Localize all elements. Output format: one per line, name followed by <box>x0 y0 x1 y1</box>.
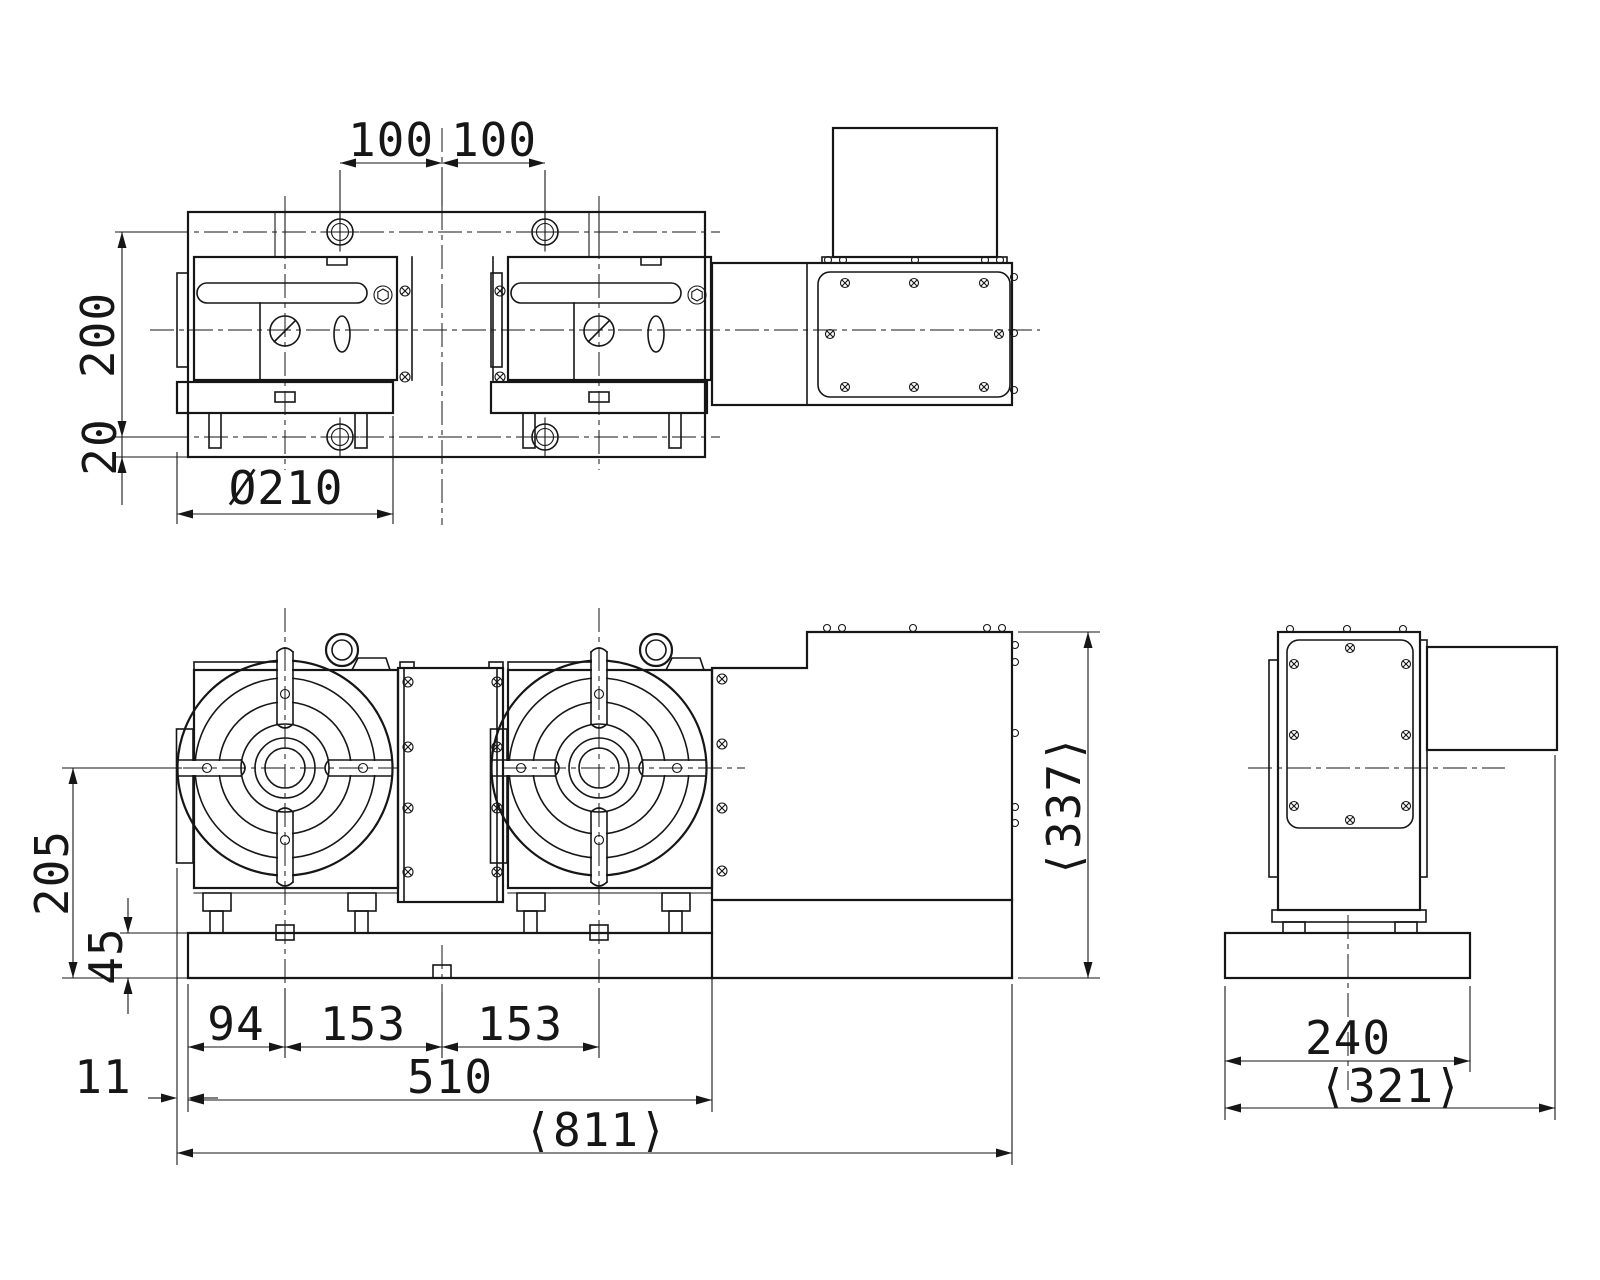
front-view <box>105 608 1019 1008</box>
rotary-unit-right-front <box>491 634 713 940</box>
dim-label: 240 <box>1305 1011 1391 1065</box>
twin-rotary-table-drawing: 100 100 200 20 Ø210 <box>0 0 1600 1280</box>
dim-label: 11 <box>74 1050 131 1104</box>
motor-box-top <box>833 128 997 257</box>
center-joint-top <box>400 257 505 382</box>
dim-label: 510 <box>407 1050 493 1104</box>
dim-label: 94 <box>207 997 264 1051</box>
dim-label: 200 <box>71 292 125 378</box>
dim-center-height: 205 45 <box>25 768 190 1014</box>
dim-overall-width: ⟨811⟩ <box>177 984 1012 1165</box>
dimensions: 100 100 200 20 Ø210 <box>25 113 1555 1165</box>
dim-label: 20 <box>73 418 127 475</box>
dim-label: ⟨811⟩ <box>524 1103 667 1157</box>
dim-label: 153 <box>477 997 563 1051</box>
center-joint-front <box>398 662 503 902</box>
dim-label: 100 <box>348 113 434 167</box>
cover-plate-top <box>818 272 1010 397</box>
dim-label: 45 <box>79 927 133 984</box>
base-plate-top <box>188 212 705 457</box>
rotary-unit-left-front <box>177 634 399 940</box>
dim-side-widths: 240 ⟨321⟩ <box>1225 755 1555 1120</box>
dim-spindle-spacing: 94 153 153 <box>188 988 599 1058</box>
cad-drawing-page: 100 100 200 20 Ø210 <box>0 0 1600 1280</box>
column-flange-side <box>1272 910 1426 922</box>
dim-label: ⟨321⟩ <box>1319 1059 1462 1113</box>
dim-overall-height: ⟨337⟩ <box>1018 632 1100 978</box>
dim-label: 205 <box>25 830 79 916</box>
dim-label: Ø210 <box>229 461 344 515</box>
dim-label: 153 <box>320 997 406 1051</box>
dim-label: 100 <box>451 113 537 167</box>
dim-body-width: 510 <box>188 906 712 1112</box>
dim-top-depth: 200 20 <box>71 232 190 505</box>
dim-label: ⟨337⟩ <box>1037 734 1091 877</box>
motor-box-side <box>1427 647 1557 750</box>
dim-table-overhang: 11 <box>74 868 218 1165</box>
cover-plate-side <box>1287 640 1413 828</box>
column-side <box>1278 632 1420 910</box>
drive-arm-top <box>712 128 1018 405</box>
gear-housing-front <box>712 625 1019 979</box>
